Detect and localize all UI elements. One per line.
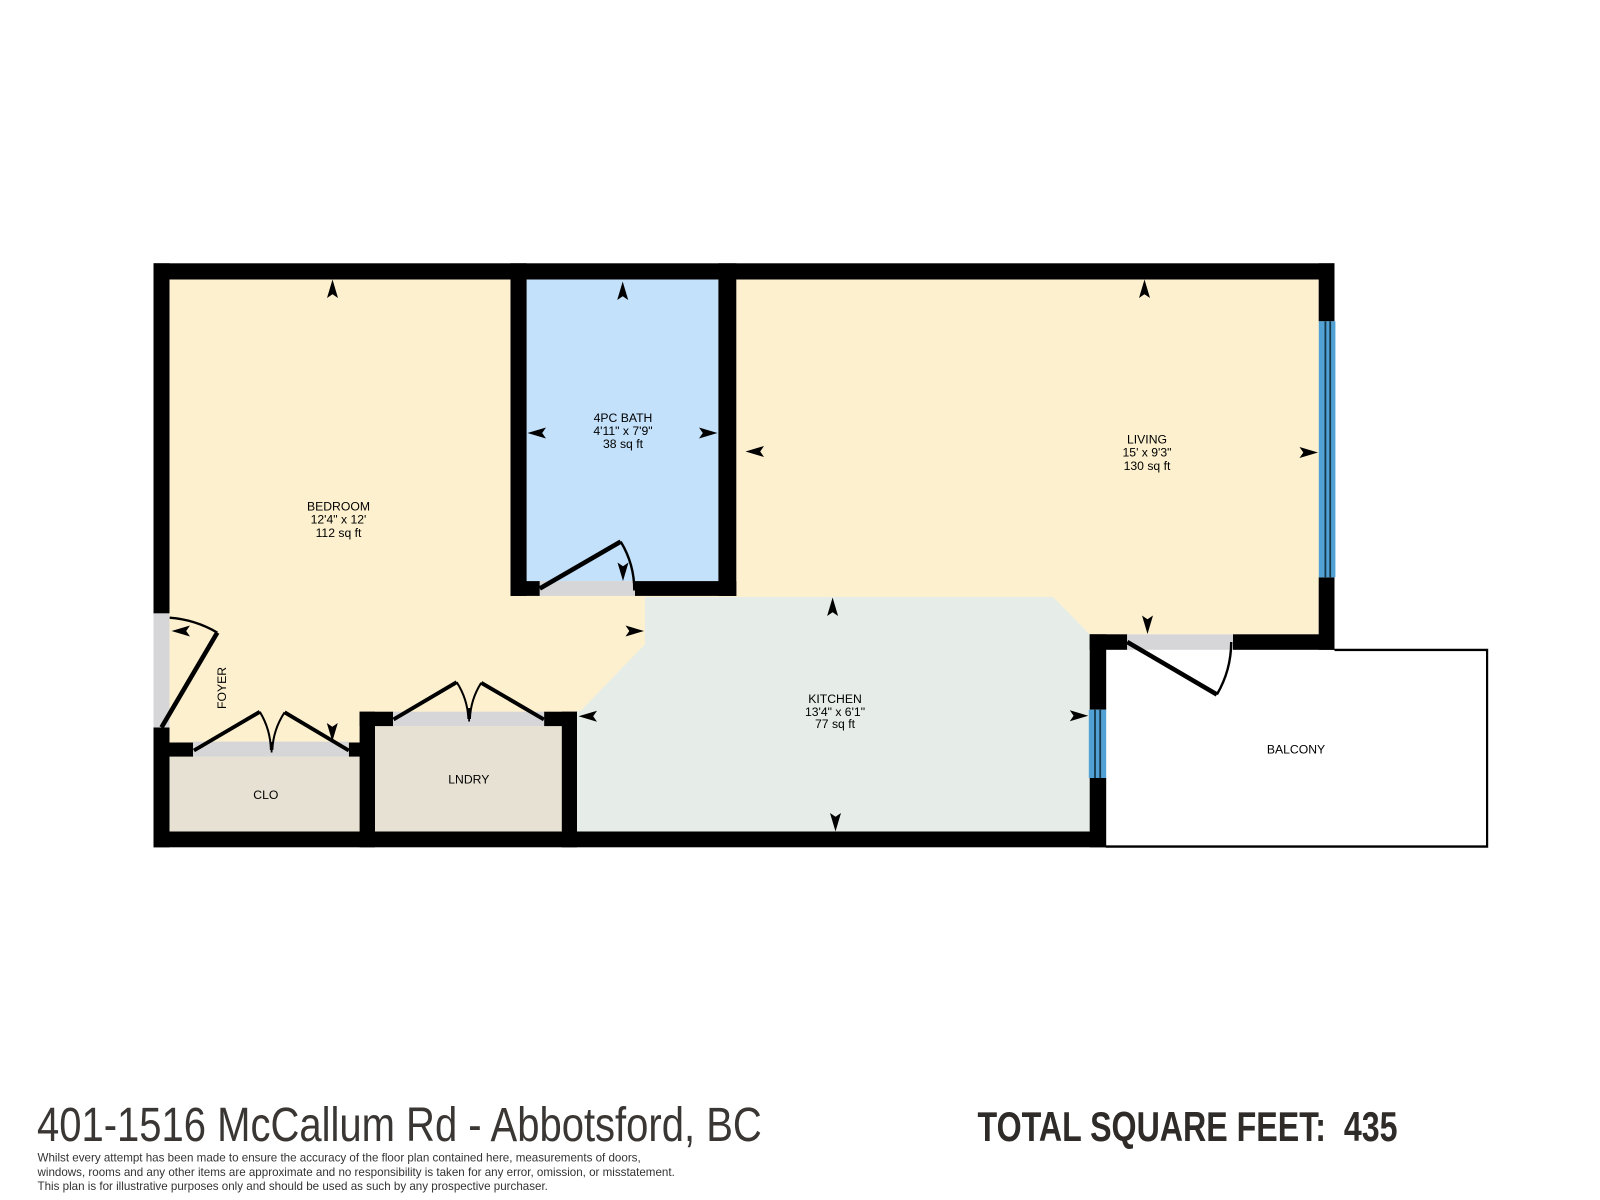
svg-text:112 sq ft: 112 sq ft (316, 526, 362, 540)
svg-text:4'11" x 7'9": 4'11" x 7'9" (593, 424, 652, 438)
svg-text:12'4" x 12': 12'4" x 12' (311, 513, 367, 527)
svg-text:FOYER: FOYER (215, 667, 229, 709)
svg-text:This plan is for illustrative: This plan is for illustrative purposes o… (38, 1180, 548, 1193)
svg-text:LNDRY: LNDRY (448, 773, 489, 787)
svg-text:Whilst every attempt has been: Whilst every attempt has been made to en… (38, 1152, 641, 1165)
svg-text:BEDROOM: BEDROOM (307, 500, 370, 514)
svg-text:401-1516 McCallum Rd - Abbotsf: 401-1516 McCallum Rd - Abbotsford, BC (37, 1099, 762, 1152)
svg-text:38 sq ft: 38 sq ft (603, 437, 644, 451)
svg-text:130 sq ft: 130 sq ft (1124, 459, 1171, 473)
svg-text:4PC BATH: 4PC BATH (594, 411, 653, 425)
svg-text:LIVING: LIVING (1127, 432, 1167, 446)
svg-text:77 sq ft: 77 sq ft (815, 717, 856, 731)
svg-text:15' x 9'3": 15' x 9'3" (1123, 446, 1172, 460)
svg-text:BALCONY: BALCONY (1267, 743, 1325, 757)
svg-text:TOTAL SQUARE FEET: 435: TOTAL SQUARE FEET: 435 (978, 1103, 1398, 1150)
svg-text:windows, rooms and any other i: windows, rooms and any other items are a… (37, 1166, 675, 1179)
svg-text:CLO: CLO (253, 788, 278, 802)
